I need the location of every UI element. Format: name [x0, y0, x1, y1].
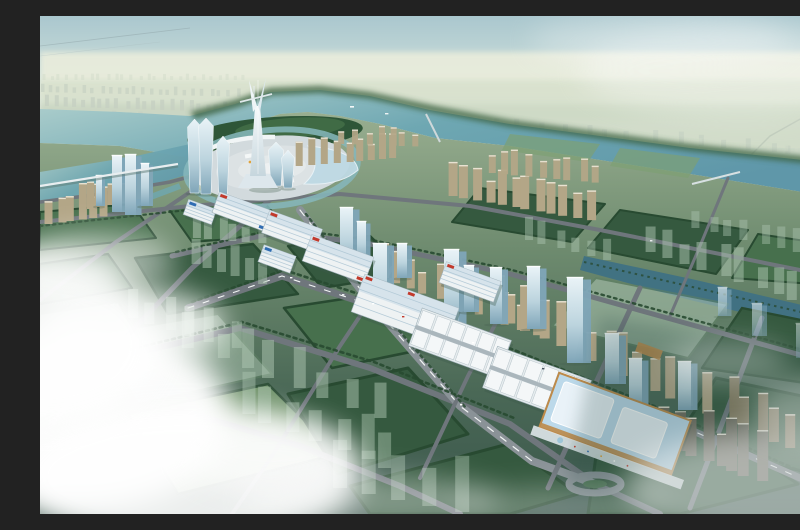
building-block [646, 227, 656, 253]
car [402, 316, 404, 317]
building-block [243, 372, 256, 414]
building-block [746, 138, 751, 150]
building-block [211, 89, 215, 96]
building-block [65, 75, 68, 80]
building-block [592, 166, 599, 183]
flared-tower-face [282, 150, 295, 188]
tower-face [567, 278, 583, 363]
car [542, 368, 544, 369]
tower-face [718, 288, 727, 316]
building-roof [573, 193, 582, 194]
building-block [45, 201, 53, 224]
building-block [412, 135, 418, 147]
building-block [571, 238, 579, 252]
boat [350, 106, 354, 108]
building-roof [556, 301, 566, 302]
building-block [245, 258, 254, 280]
building-block [449, 162, 458, 196]
building-roof [459, 165, 468, 166]
building-block [758, 267, 768, 288]
building-block [294, 347, 306, 388]
building-roof [511, 150, 518, 151]
building-block [242, 227, 250, 242]
cloud-wisp [670, 339, 790, 383]
building-block [308, 138, 315, 165]
building-block [418, 272, 426, 294]
building-roof [449, 162, 458, 163]
building-block [540, 161, 547, 178]
building-block [226, 74, 229, 80]
flared-tower-face [199, 118, 214, 194]
building-roof [321, 137, 328, 138]
tower-side [540, 269, 547, 330]
building-block [109, 87, 113, 94]
tower-roof [567, 277, 584, 278]
building-block [378, 433, 391, 469]
building-block [66, 196, 74, 221]
building-roof [59, 198, 67, 199]
building-block [487, 181, 496, 203]
building-block [219, 75, 222, 80]
building-block [97, 99, 101, 108]
tower-face [397, 244, 407, 278]
tower-face [96, 176, 102, 206]
flared-tower-face [217, 136, 230, 198]
building-block [105, 99, 109, 109]
building-block [148, 74, 151, 80]
building-roof [489, 155, 496, 156]
building-block [102, 86, 106, 93]
car [460, 404, 462, 405]
building-roof [399, 132, 405, 133]
building-block [338, 131, 344, 144]
building-block [774, 267, 784, 294]
building-block [64, 84, 68, 93]
building-roof [473, 168, 482, 169]
building-block [723, 220, 731, 236]
tower-roof [125, 154, 137, 155]
tower-roof [444, 249, 460, 250]
building-roof [501, 151, 508, 152]
building-block [75, 74, 78, 80]
building-roof [418, 272, 426, 273]
building-block [489, 155, 496, 173]
building-block [217, 90, 221, 96]
building-block [557, 231, 565, 249]
building-block [391, 127, 397, 145]
tower-side [762, 306, 767, 337]
building-block [662, 230, 672, 258]
building-block [91, 74, 94, 80]
building-roof [537, 179, 546, 180]
building-block [183, 90, 187, 96]
building-roof [563, 157, 570, 158]
building-block [165, 90, 169, 95]
tower-roof [373, 243, 388, 244]
building-block [367, 133, 373, 145]
building-block [200, 89, 204, 96]
tower-face [752, 304, 762, 336]
building-block [83, 85, 87, 93]
building-roof [547, 182, 556, 183]
building-roof [379, 126, 385, 127]
building-block [762, 225, 770, 244]
render-canvas [40, 16, 800, 514]
building-block [241, 75, 244, 80]
building-block [755, 143, 759, 149]
building-block [556, 301, 566, 346]
building-block [151, 101, 155, 110]
building-block [785, 145, 789, 151]
building-roof [66, 196, 74, 197]
building-block [711, 217, 719, 232]
tower-roof [357, 221, 367, 222]
building-block [45, 95, 49, 106]
tower-face [125, 155, 136, 215]
building-block [793, 228, 800, 252]
building-block [231, 245, 240, 276]
building-block [118, 88, 122, 94]
building-block [740, 142, 744, 148]
building-block [81, 100, 85, 107]
building-block [525, 154, 532, 177]
building-block [56, 74, 59, 80]
building-block [603, 239, 611, 260]
building-block [511, 150, 518, 176]
building-block [186, 74, 189, 80]
building-block [114, 98, 118, 108]
building-roof [45, 201, 53, 202]
building-roof [437, 264, 445, 265]
tower-side [727, 290, 732, 317]
building-roof [487, 181, 496, 182]
building-block [64, 97, 68, 106]
tower-side [407, 246, 412, 279]
building-block [96, 74, 99, 80]
building-block [537, 179, 546, 212]
building-roof [296, 142, 303, 143]
building-block [56, 87, 60, 93]
building-block [41, 84, 45, 92]
building-roof [79, 183, 87, 184]
building-roof [592, 166, 599, 167]
tower-roof [141, 163, 150, 164]
building-block [120, 74, 123, 80]
building-block [159, 90, 163, 95]
building-block [375, 383, 387, 418]
building-block [739, 220, 747, 240]
building-block [116, 74, 119, 80]
building-block [787, 271, 797, 300]
tower-roof [796, 323, 800, 324]
building-block [72, 99, 76, 107]
building-block [79, 183, 87, 220]
building-block [55, 95, 59, 106]
building-roof [412, 135, 418, 136]
building-block [141, 87, 145, 94]
building-block [777, 227, 785, 249]
building-block [126, 101, 130, 109]
tower-roof [527, 266, 541, 267]
building-block [547, 182, 556, 214]
building-block [587, 241, 595, 256]
building-block [132, 86, 136, 94]
building-roof [338, 131, 344, 132]
building-block [51, 76, 54, 80]
building-block [347, 143, 354, 162]
building-block [321, 137, 328, 164]
building-block [729, 141, 733, 147]
building-block [473, 168, 482, 201]
tower-face [112, 156, 122, 212]
building-block [153, 76, 156, 80]
building-block [73, 87, 77, 92]
tower-roof [340, 207, 354, 208]
building-block [459, 165, 468, 198]
tower-roof [490, 267, 503, 268]
tower-roof [752, 303, 763, 304]
building-block [202, 74, 205, 80]
building-block [192, 239, 201, 264]
building-block [171, 99, 175, 110]
building-block [193, 76, 196, 80]
tower-side [583, 280, 591, 364]
building-block [558, 185, 567, 216]
building-roof [558, 185, 567, 186]
building-block [352, 130, 358, 145]
building-block [537, 221, 545, 244]
building-block [697, 242, 707, 270]
tower-side [502, 270, 508, 325]
building-block [179, 76, 182, 80]
building-block [525, 217, 533, 240]
building-block [232, 321, 242, 348]
building-block [262, 340, 274, 378]
building-block [498, 170, 507, 205]
building-block [379, 126, 385, 145]
building-block [347, 379, 359, 408]
tower-roof [718, 287, 728, 288]
building-block [150, 89, 154, 95]
building-block [721, 140, 726, 148]
car [290, 277, 292, 278]
building-block [228, 224, 236, 241]
building-block [217, 249, 226, 272]
building-block [90, 88, 94, 93]
building-block [296, 142, 303, 166]
building-block [234, 76, 237, 80]
building-block [715, 140, 719, 146]
building-block [125, 88, 128, 94]
tower-side [102, 178, 105, 207]
building-roof [525, 154, 532, 155]
car [650, 240, 652, 241]
building-block [203, 246, 212, 268]
building-block [160, 100, 164, 110]
building-block [399, 132, 405, 146]
building-block [242, 329, 254, 369]
car [342, 294, 344, 295]
building-block [108, 74, 111, 80]
building-block [163, 74, 166, 80]
boat [385, 113, 388, 114]
building-roof [513, 177, 522, 178]
building-block [691, 211, 699, 228]
building-block [237, 88, 241, 96]
building-block [136, 98, 140, 109]
building-block [142, 101, 146, 109]
building-block [316, 372, 328, 398]
building-block [680, 244, 690, 264]
building-block [129, 75, 132, 80]
building-block [140, 76, 143, 80]
building-block [226, 90, 230, 97]
building-block [520, 176, 529, 210]
building-roof [352, 130, 358, 131]
building-block [368, 144, 375, 160]
building-block [573, 193, 582, 218]
building-block [587, 190, 596, 220]
building-block [772, 143, 777, 152]
tower-roof [397, 243, 408, 244]
building-block [191, 89, 195, 96]
building-block [81, 75, 84, 80]
car [472, 342, 474, 343]
building-block [698, 138, 702, 145]
tower-roof [112, 155, 123, 156]
building-block [49, 85, 53, 92]
building-roof [553, 159, 560, 160]
building-roof [391, 127, 397, 128]
building-block [501, 151, 508, 174]
building-block [795, 147, 799, 152]
building-block [209, 76, 212, 80]
building-block [563, 157, 570, 180]
building-block [581, 159, 588, 182]
building-block [734, 247, 744, 282]
building-block [553, 159, 560, 179]
building-block [687, 140, 691, 145]
tower-face [527, 267, 540, 329]
aerial-city-render [40, 16, 800, 514]
building-block [91, 97, 95, 107]
building-block [59, 198, 67, 223]
building-roof [308, 138, 315, 139]
building-block [334, 141, 341, 163]
building-block [170, 76, 173, 80]
tower-roof [464, 265, 475, 266]
building-block [679, 132, 684, 144]
building-roof [587, 190, 596, 191]
building-block [767, 142, 771, 150]
building-roof [581, 159, 588, 160]
building-block [43, 74, 46, 80]
building-block [721, 244, 731, 276]
car [372, 303, 374, 304]
building-block [513, 177, 522, 207]
building-roof [367, 133, 373, 134]
building-block [180, 100, 184, 111]
building-block [190, 100, 194, 111]
building-block [87, 182, 94, 210]
building-block [174, 87, 178, 96]
building-roof [540, 161, 547, 162]
